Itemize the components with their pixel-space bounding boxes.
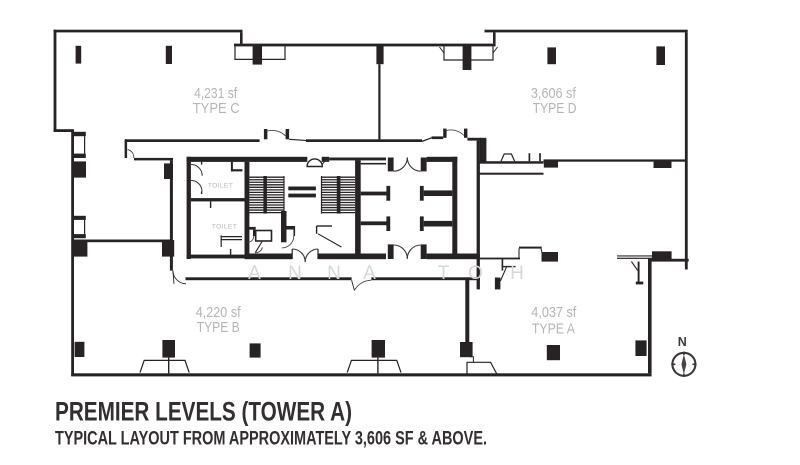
svg-text:4,037 sf: 4,037 sf bbox=[531, 304, 577, 321]
svg-text:O: O bbox=[468, 263, 483, 284]
svg-text:TYPE C: TYPE C bbox=[193, 100, 240, 117]
svg-text:TYPE A: TYPE A bbox=[532, 321, 575, 338]
svg-text:TYPE D: TYPE D bbox=[533, 100, 577, 117]
svg-text:N: N bbox=[327, 263, 341, 284]
svg-text:T: T bbox=[438, 263, 450, 284]
svg-text:PREMIER LEVELS (TOWER A): PREMIER LEVELS (TOWER A) bbox=[55, 397, 352, 427]
svg-text:TYPICAL LAYOUT FROM APPROXIMAT: TYPICAL LAYOUT FROM APPROXIMATELY 3,606 … bbox=[55, 427, 487, 449]
svg-text:H: H bbox=[510, 263, 524, 284]
svg-text:TOILET: TOILET bbox=[212, 223, 237, 230]
svg-text:A: A bbox=[363, 263, 376, 284]
svg-text:N: N bbox=[288, 263, 302, 284]
svg-text:N: N bbox=[678, 335, 687, 349]
svg-text:TOILET: TOILET bbox=[208, 182, 233, 189]
svg-text:A: A bbox=[248, 263, 261, 284]
svg-text:TYPE B: TYPE B bbox=[197, 319, 240, 336]
